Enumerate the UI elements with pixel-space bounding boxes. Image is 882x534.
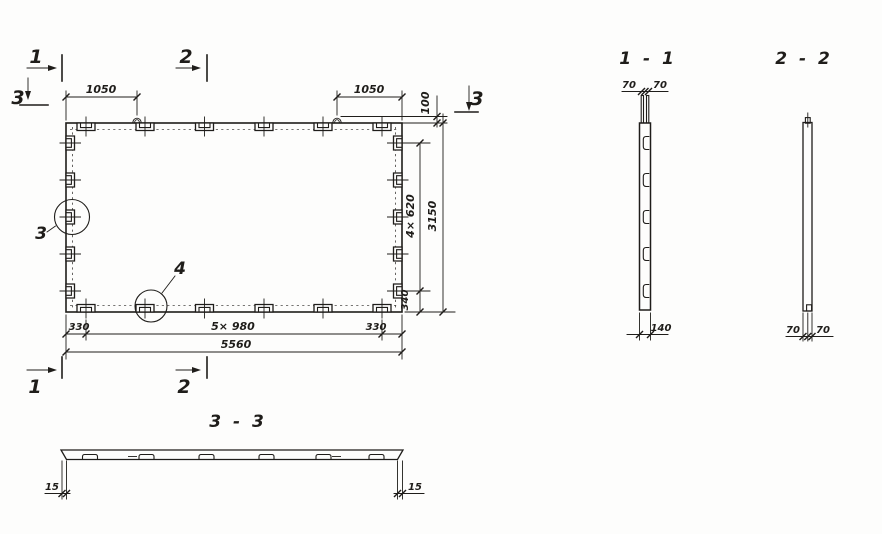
dim-bottom-pitch-5x980: 5× 980 xyxy=(211,320,255,333)
connector-tabs xyxy=(60,117,409,319)
section-title: 2 - 2 xyxy=(775,49,833,69)
section-mark-2-bottom: 2 xyxy=(176,357,207,398)
dim-bottom-left-330: 330 xyxy=(69,322,90,333)
section-mark-3-right: 3 xyxy=(455,86,484,112)
panel-outline xyxy=(66,123,402,312)
section-mark-label: 3 xyxy=(470,88,483,110)
dim-top-right-1050: 1050 xyxy=(354,83,385,96)
dim-140: 140 xyxy=(651,323,672,334)
dim-loop-height-100: 100 xyxy=(419,91,432,114)
section-mark-2-top: 2 xyxy=(176,46,207,81)
dim-right-pitch-4x620: 4× 620 xyxy=(404,194,417,239)
section-mark-label: 2 xyxy=(177,376,190,398)
plan-view: 1050 1050 100 4× 620 340 3150 330 5× 980… xyxy=(11,46,483,398)
dim-right-margin-340: 340 xyxy=(400,290,411,311)
section-title: 3 - 3 xyxy=(209,412,267,432)
dim-15-left: 15 xyxy=(45,482,59,493)
section-mark-3-left: 3 xyxy=(11,78,48,109)
section-title: 1 - 1 xyxy=(619,49,677,69)
section-2-2-view: 2 - 2 70 70 xyxy=(775,49,833,341)
panel-section-body xyxy=(61,450,403,460)
section-mark-1-bottom: 1 xyxy=(27,357,62,398)
loop-leg xyxy=(641,96,643,124)
dim-height-3150: 3150 xyxy=(426,200,439,231)
dim-15-right: 15 xyxy=(408,482,422,493)
detail-callout-3: 3 xyxy=(35,200,89,245)
loop-leg xyxy=(647,96,649,124)
section-1-1-view: 1 - 1 70 70 140 xyxy=(619,49,677,340)
section-mark-label: 1 xyxy=(29,46,42,68)
dim-length-5560: 5560 xyxy=(221,338,252,351)
dim-top-left-1050: 1050 xyxy=(86,83,117,96)
panel-drawing: 1050 1050 100 4× 620 340 3150 330 5× 980… xyxy=(0,0,882,534)
section-mark-label: 3 xyxy=(11,87,24,109)
detail-callout-label: 4 xyxy=(173,259,186,279)
dim-70-left: 70 xyxy=(786,325,800,336)
rib-section-body xyxy=(640,123,651,310)
dim-70-left: 70 xyxy=(622,80,636,91)
dim-70-right: 70 xyxy=(653,80,667,91)
section-mark-1-top: 1 xyxy=(27,46,62,81)
dim-70-right: 70 xyxy=(816,325,830,336)
dim-bottom-right-330: 330 xyxy=(366,322,387,333)
section-mark-label: 2 xyxy=(179,46,192,68)
section-3-3-view: 3 - 3 15 15 xyxy=(45,412,424,499)
rib-section-body xyxy=(803,123,812,312)
detail-callout-label: 3 xyxy=(35,224,47,244)
drawing-sheet: 1050 1050 100 4× 620 340 3150 330 5× 980… xyxy=(0,0,882,534)
section-mark-label: 1 xyxy=(28,376,41,398)
